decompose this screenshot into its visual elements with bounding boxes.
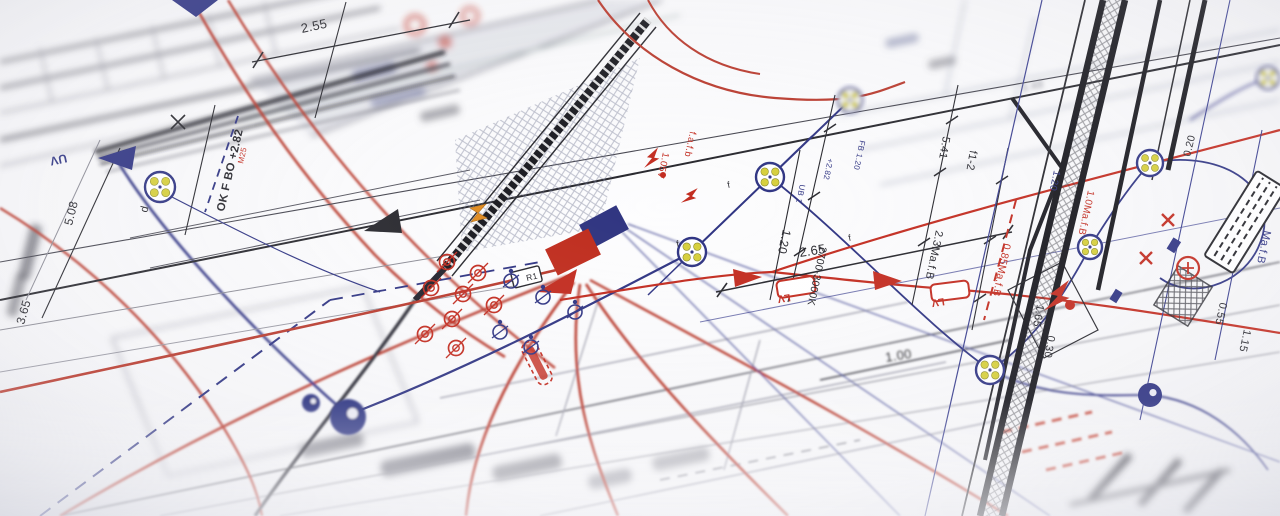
blueprint-photo: 2.55OK F BO +2.82M255.08d3.652.651.00f1-… [0,0,1280,516]
blueprint-canvas: 2.55OK F BO +2.82M255.08d3.652.651.00f1-… [0,0,1280,516]
vignette-overlay [0,0,1280,516]
